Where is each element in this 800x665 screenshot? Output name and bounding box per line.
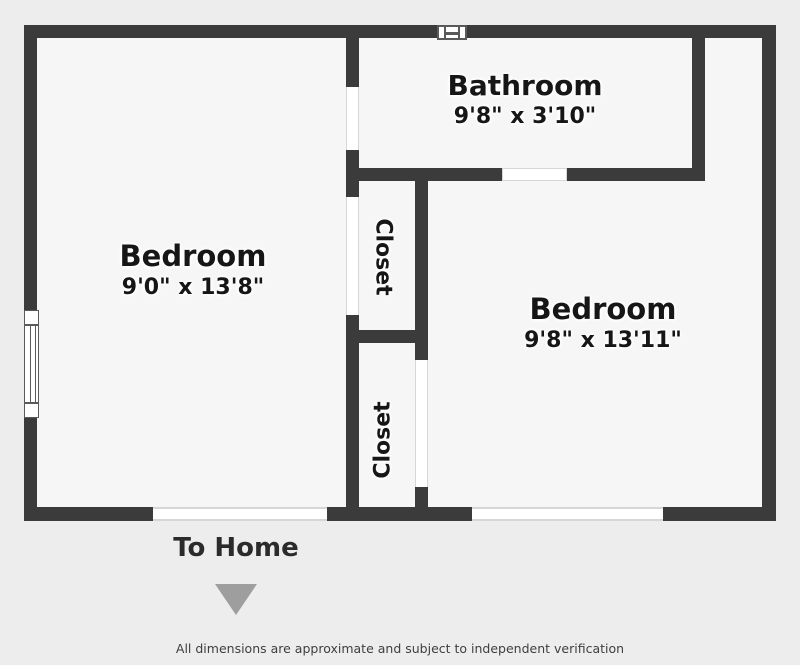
wall-top xyxy=(24,25,776,38)
label-bathroom: Bathroom 9'8" x 3'10" xyxy=(447,70,602,130)
floor-plan: Bedroom 9'0" x 13'8" Bathroom 9'8" x 3'1… xyxy=(24,25,776,521)
wall-right xyxy=(762,25,776,521)
label-closet-bottom: Closet xyxy=(371,401,396,478)
wall-bathroom-bottom-right xyxy=(567,168,705,181)
room-dims: 9'8" x 3'10" xyxy=(447,104,602,129)
opening-bedroom-right-bottom xyxy=(472,507,663,521)
room-name: Bedroom xyxy=(120,240,267,272)
opening-closet-top-door xyxy=(346,197,359,315)
to-home-label: To Home xyxy=(173,533,299,563)
wall-closet-bedroom-right-lower xyxy=(415,487,428,507)
room-name: Bathroom xyxy=(447,70,602,101)
window-glass-line-icon xyxy=(30,326,36,403)
wall-bathroom-bottom-left xyxy=(346,168,502,181)
wall-bedroom-closet xyxy=(346,315,359,507)
opening-closet-bottom-door xyxy=(415,360,428,487)
down-arrow-icon xyxy=(215,584,257,615)
disclaimer-text: All dimensions are approximate and subje… xyxy=(0,641,800,656)
room-dims: 9'8" x 13'11" xyxy=(524,328,682,353)
room-dims: 9'0" x 13'8" xyxy=(120,275,267,300)
floorplan-canvas: Bedroom 9'0" x 13'8" Bathroom 9'8" x 3'1… xyxy=(0,0,800,665)
wall-bedroom-bathroom-upper xyxy=(346,38,359,87)
room-name: Bedroom xyxy=(524,293,682,325)
label-bedroom-left: Bedroom 9'0" x 13'8" xyxy=(120,240,267,301)
opening-bedroom-to-bathroom xyxy=(346,87,359,150)
wall-bottom xyxy=(24,507,776,521)
wall-bathroom-right xyxy=(692,38,705,181)
window-icon-left xyxy=(24,310,39,418)
label-bedroom-right: Bedroom 9'8" x 13'11" xyxy=(524,293,682,354)
window-icon-top xyxy=(437,25,467,40)
wall-left xyxy=(24,25,37,521)
opening-entry-bedroom-left xyxy=(153,507,327,521)
opening-bathroom-door xyxy=(502,168,567,181)
wall-between-closets xyxy=(346,330,428,343)
window-glass-line-icon xyxy=(446,32,459,35)
label-closet-top: Closet xyxy=(371,218,396,295)
